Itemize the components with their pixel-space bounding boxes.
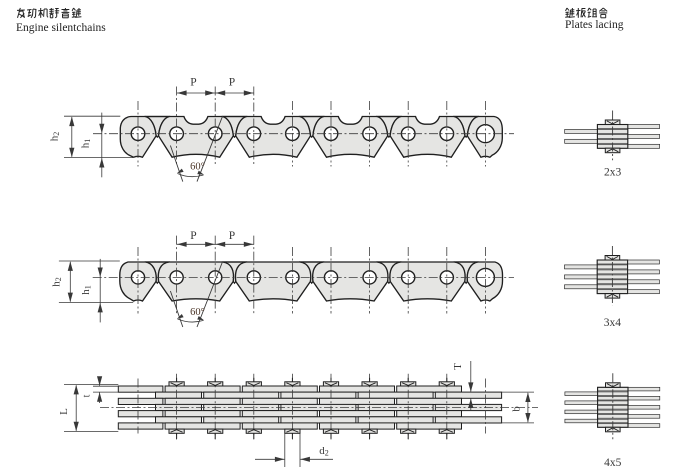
svg-text:60°: 60° bbox=[190, 307, 205, 318]
svg-text:L: L bbox=[58, 408, 70, 415]
svg-text:3x4: 3x4 bbox=[604, 317, 622, 329]
svg-text:t: t bbox=[82, 394, 93, 397]
svg-text:Plates lacing: Plates lacing bbox=[565, 19, 624, 31]
svg-text:60°: 60° bbox=[190, 162, 205, 173]
svg-text:P: P bbox=[190, 230, 196, 242]
svg-text:2x3: 2x3 bbox=[604, 167, 622, 179]
svg-text:b: b bbox=[511, 406, 523, 412]
svg-text:4x5: 4x5 bbox=[604, 457, 622, 469]
svg-text:P: P bbox=[190, 77, 196, 89]
svg-text:P: P bbox=[229, 77, 235, 89]
svg-text:T: T bbox=[452, 363, 464, 370]
svg-text:P: P bbox=[229, 230, 235, 242]
svg-text:Engine silentchains: Engine silentchains bbox=[16, 22, 106, 34]
